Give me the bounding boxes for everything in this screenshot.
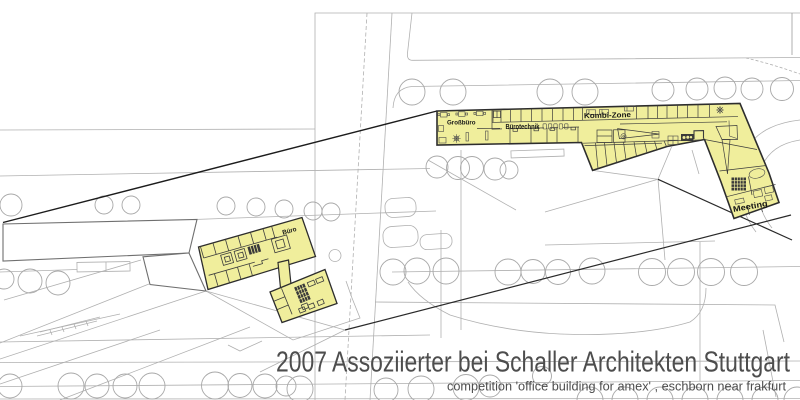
svg-text:Großbüro: Großbüro — [447, 119, 476, 126]
svg-text:2007 Assoziierter bei Schaller: 2007 Assoziierter bei Schaller Architekt… — [276, 347, 790, 379]
svg-text:Bürotechnik: Bürotechnik — [506, 124, 540, 131]
svg-text:Kombi-Zone: Kombi-Zone — [584, 110, 631, 120]
svg-text:competition 'office building f: competition 'office building for amex' ,… — [447, 378, 786, 393]
